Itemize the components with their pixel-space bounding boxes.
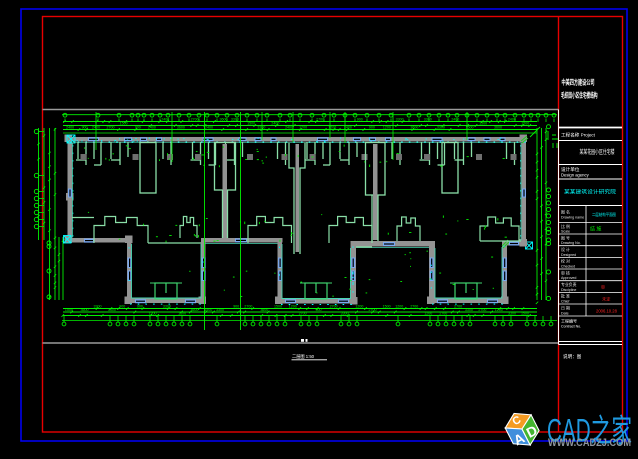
svg-text:1500: 1500: [521, 122, 529, 126]
svg-text:3300: 3300: [396, 118, 404, 122]
svg-text:3600: 3600: [260, 308, 268, 312]
svg-text:3600: 3600: [410, 126, 418, 130]
svg-text:Discipline: Discipline: [561, 288, 576, 292]
svg-text:结 施: 结 施: [590, 226, 601, 233]
svg-text:2400: 2400: [205, 126, 213, 130]
svg-text:3300: 3300: [163, 305, 171, 309]
svg-text:1200: 1200: [355, 305, 363, 309]
svg-text:日 期: 日 期: [561, 306, 570, 311]
svg-text:专业负责: 专业负责: [561, 282, 577, 287]
svg-text:说明：图: 说明：图: [563, 353, 582, 360]
svg-text:3600: 3600: [494, 126, 502, 130]
svg-text:900: 900: [233, 305, 239, 309]
svg-text:2400: 2400: [271, 122, 279, 126]
svg-text:2400: 2400: [451, 118, 459, 122]
svg-text:900: 900: [82, 126, 88, 130]
svg-text:1500: 1500: [383, 305, 391, 309]
svg-text:3300: 3300: [257, 126, 265, 130]
svg-text:1200: 1200: [299, 126, 307, 130]
svg-text:Drawing No.: Drawing No.: [561, 241, 581, 245]
svg-text:Approved: Approved: [561, 276, 576, 280]
svg-text:1500: 1500: [178, 312, 186, 316]
svg-text:Checked: Checked: [561, 265, 575, 269]
svg-text:工程编号: 工程编号: [561, 318, 577, 324]
svg-text:1200: 1200: [289, 305, 297, 309]
svg-text:2400: 2400: [161, 118, 169, 122]
svg-text:2400: 2400: [148, 126, 156, 130]
svg-text:审 核: 审 核: [561, 270, 570, 275]
svg-text:未定: 未定: [602, 296, 610, 303]
svg-text:设 计: 设 计: [561, 247, 570, 252]
svg-text:900: 900: [137, 305, 143, 309]
svg-text:3300: 3300: [108, 308, 116, 312]
svg-text:3300: 3300: [216, 308, 224, 312]
svg-text:2700: 2700: [106, 126, 114, 130]
svg-text:比 例: 比 例: [561, 224, 570, 229]
svg-text:某某建筑设计研究院: 某某建筑设计研究院: [564, 189, 616, 196]
svg-text:3600: 3600: [190, 308, 198, 312]
svg-text:1200: 1200: [149, 312, 157, 316]
svg-text:900: 900: [357, 118, 363, 122]
svg-text:2700: 2700: [454, 305, 462, 309]
svg-text:图 名: 图 名: [561, 210, 570, 215]
svg-text:2700: 2700: [478, 308, 486, 312]
svg-text:3300: 3300: [231, 118, 239, 122]
svg-text:Design agency: Design agency: [561, 173, 590, 178]
svg-text:3300: 3300: [341, 312, 349, 316]
svg-text:1200: 1200: [383, 126, 391, 130]
svg-text:3600: 3600: [219, 118, 227, 122]
svg-text:3600: 3600: [81, 308, 89, 312]
svg-text:2006.10.28: 2006.10.28: [596, 309, 618, 314]
svg-text:1500: 1500: [204, 308, 212, 312]
svg-text:3300: 3300: [508, 312, 516, 316]
svg-text:3600: 3600: [177, 126, 185, 130]
svg-text:900: 900: [369, 126, 375, 130]
svg-text:2400: 2400: [66, 126, 74, 130]
svg-text:900: 900: [119, 305, 125, 309]
svg-text:2700: 2700: [410, 305, 418, 309]
svg-text:Contract No.: Contract No.: [561, 325, 581, 329]
svg-text:1500: 1500: [479, 122, 487, 126]
svg-text:2700: 2700: [191, 118, 199, 122]
svg-text:Designed: Designed: [561, 253, 576, 257]
svg-text:Chief: Chief: [561, 300, 569, 304]
svg-text:Drawing name: Drawing name: [561, 215, 584, 219]
svg-text:中美四方建设公司: 中美四方建设公司: [562, 78, 595, 87]
svg-text:2700: 2700: [244, 305, 252, 309]
svg-text:2400: 2400: [508, 118, 516, 122]
svg-text:1500: 1500: [65, 308, 73, 312]
svg-text:Date: Date: [561, 311, 569, 315]
svg-text:1200: 1200: [495, 308, 503, 312]
svg-text:1200: 1200: [328, 126, 336, 130]
svg-text:校 对: 校 对: [561, 259, 570, 264]
svg-text:3300: 3300: [94, 305, 102, 309]
svg-text:审: 审: [601, 284, 605, 290]
svg-text:3300: 3300: [437, 126, 445, 130]
svg-text:900: 900: [316, 308, 322, 312]
svg-text:图 号: 图 号: [561, 235, 570, 240]
svg-text:毛织园小区住宅楼结构: 毛织园小区住宅楼结构: [561, 91, 598, 100]
svg-text:2700: 2700: [299, 312, 307, 316]
svg-text:900: 900: [135, 126, 141, 130]
svg-text:1200: 1200: [424, 312, 432, 316]
svg-text:2700: 2700: [439, 312, 447, 316]
svg-text:1500: 1500: [521, 312, 529, 316]
svg-text:某某花园小区住宅楼: 某某花园小区住宅楼: [580, 148, 615, 156]
svg-text:1500: 1500: [274, 305, 282, 309]
svg-text:1500: 1500: [120, 122, 128, 126]
svg-text:批 准: 批 准: [561, 294, 570, 299]
svg-text:1500: 1500: [247, 122, 255, 126]
svg-text:2700: 2700: [368, 308, 376, 312]
svg-text:2700: 2700: [316, 118, 324, 122]
svg-text:二层结构平面图: 二层结构平面图: [592, 211, 616, 218]
svg-text:Scale: Scale: [561, 230, 570, 234]
svg-text:2700: 2700: [330, 305, 338, 309]
svg-text:工程名称 Project: 工程名称 Project: [561, 132, 596, 139]
svg-text:WWW.CADZJ.COM: WWW.CADZJ.COM: [548, 437, 631, 449]
svg-text:2400: 2400: [285, 126, 293, 130]
svg-text:1200: 1200: [395, 305, 403, 309]
svg-text:3300: 3300: [465, 308, 473, 312]
svg-text:3300: 3300: [424, 118, 432, 122]
